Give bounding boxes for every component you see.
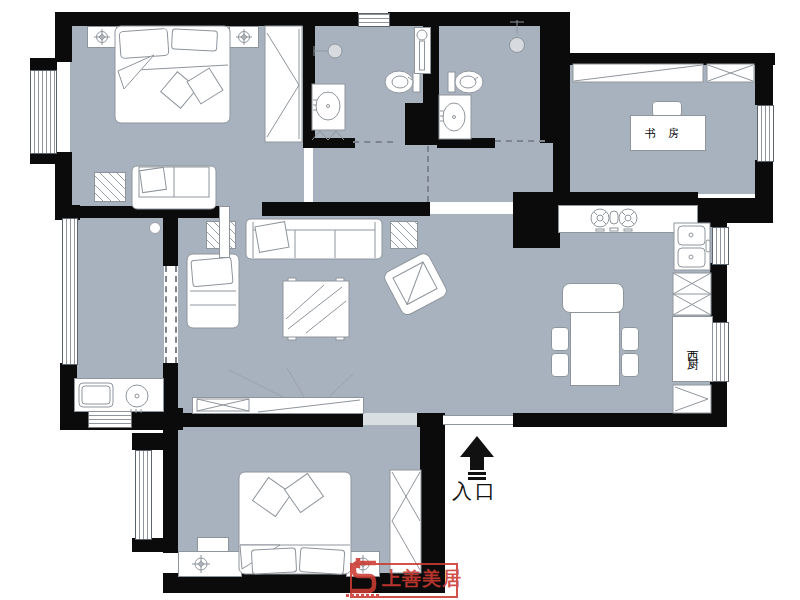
compass-icon xyxy=(187,552,215,576)
wall-segment xyxy=(163,363,178,413)
daybed-chaise xyxy=(186,253,240,329)
tv-icon xyxy=(192,397,364,414)
wall-segment xyxy=(513,413,727,427)
pipe-icon xyxy=(415,28,430,73)
cabinet-x xyxy=(672,272,713,316)
doorway-second-bedroom xyxy=(363,413,417,425)
entrance-threshold xyxy=(443,415,513,425)
wall-segment xyxy=(163,413,363,427)
shower-icon xyxy=(504,18,530,56)
sliding-door-dash xyxy=(353,141,393,143)
wall-segment xyxy=(553,50,570,197)
study-cabinet xyxy=(572,63,705,84)
wall-segment xyxy=(58,12,358,26)
side-table xyxy=(94,172,126,202)
window-laundry xyxy=(62,218,78,365)
window-second-bedroom xyxy=(135,450,152,540)
sofa xyxy=(245,218,383,260)
wall-segment xyxy=(55,152,72,207)
compass-icon xyxy=(230,27,258,47)
dining-chair xyxy=(621,353,639,377)
dining-table xyxy=(570,312,620,386)
laundry-sink-icon xyxy=(78,382,116,410)
shower-icon xyxy=(313,42,343,60)
washing-machine-icon xyxy=(122,382,152,414)
nightstand xyxy=(87,26,117,48)
armchair xyxy=(378,248,454,322)
kitchen-sink-icon xyxy=(673,222,713,272)
wall-segment xyxy=(132,433,178,450)
vanity-sink-icon xyxy=(438,94,474,140)
entrance-marker: 入口 xyxy=(448,434,508,500)
logo-subtext-mark xyxy=(346,594,380,597)
dining-chair xyxy=(621,327,639,351)
door-pivot xyxy=(149,222,161,234)
wall-segment xyxy=(30,58,57,70)
door-leaf-master xyxy=(219,206,230,258)
window-kitchen-1 xyxy=(712,227,729,265)
sliding-door-dash xyxy=(175,266,177,363)
desk: 书房 xyxy=(630,115,706,151)
entrance-bar xyxy=(468,472,486,475)
cabinet-chevron xyxy=(672,384,713,414)
sliding-door-dash xyxy=(495,140,545,142)
wall-segment xyxy=(755,53,773,105)
west-kitchen-label: 西厨 xyxy=(684,341,701,357)
wall-segment xyxy=(540,12,570,53)
bedside-unit xyxy=(178,551,242,577)
vanity-sink-icon xyxy=(311,83,347,141)
dining-chair xyxy=(551,353,569,377)
bed-second xyxy=(238,471,352,575)
dining-chair xyxy=(562,283,624,313)
study-label: 书房 xyxy=(645,126,691,141)
logo-text: 上善美居 xyxy=(382,566,462,592)
side-table xyxy=(390,221,418,249)
opening-dash xyxy=(427,146,429,202)
brand-watermark: 上善美居 xyxy=(342,554,462,600)
west-kitchen-cabinet: 西厨 xyxy=(672,316,713,382)
wall-segment xyxy=(262,202,430,216)
bed-master xyxy=(114,25,232,125)
window-kitchen-2 xyxy=(712,322,729,382)
wall-segment xyxy=(55,12,72,62)
floor-plan: 书房 西厨 xyxy=(0,0,800,600)
entrance-arrow-shaft xyxy=(470,456,484,470)
study-cabinet xyxy=(706,63,756,84)
nightstand xyxy=(229,26,259,48)
floor-laundry-balcony xyxy=(74,214,164,382)
dining-chair xyxy=(551,327,569,351)
coffee-table xyxy=(280,277,352,341)
stove-icon xyxy=(586,206,642,233)
wardrobe-master xyxy=(264,25,303,144)
wall-segment xyxy=(132,538,178,552)
toilet-icon xyxy=(445,68,485,96)
window-study xyxy=(757,105,774,162)
wall-segment xyxy=(513,192,560,248)
sliding-door-dash xyxy=(165,266,167,363)
entrance-arrow-icon xyxy=(460,436,494,457)
entrance-label: 入口 xyxy=(452,478,498,505)
wall-segment xyxy=(697,198,773,223)
window xyxy=(358,13,390,27)
compass-icon xyxy=(88,27,116,47)
window-bay-master xyxy=(30,70,57,154)
loveseat-master xyxy=(131,165,217,211)
nightstand xyxy=(197,537,229,552)
wall-segment xyxy=(405,103,439,145)
pipe-duct xyxy=(414,27,431,74)
